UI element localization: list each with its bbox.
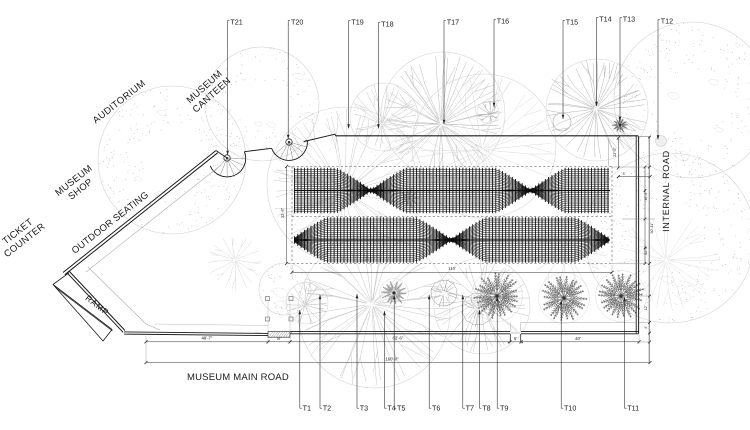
svg-text:48'-7": 48'-7" xyxy=(202,336,213,341)
svg-text:8': 8' xyxy=(277,336,280,341)
svg-text:52'-0": 52'-0" xyxy=(644,245,648,255)
svg-text:160'-0": 160'-0" xyxy=(385,356,399,361)
svg-text:T17: T17 xyxy=(447,17,459,26)
svg-text:T19: T19 xyxy=(351,17,363,26)
svg-text:6': 6' xyxy=(514,336,517,341)
svg-text:T13: T13 xyxy=(623,14,635,23)
svg-text:T20: T20 xyxy=(291,17,303,26)
svg-text:T21: T21 xyxy=(230,17,242,26)
svg-text:16'-5": 16'-5" xyxy=(644,191,648,201)
svg-text:T16: T16 xyxy=(497,16,509,25)
svg-text:40': 40' xyxy=(575,336,581,341)
svg-text:4': 4' xyxy=(644,326,648,329)
svg-text:T14: T14 xyxy=(599,14,611,23)
svg-text:5': 5' xyxy=(623,172,626,176)
svg-text:INTERNAL ROAD: INTERNAL ROAD xyxy=(661,150,671,232)
svg-text:T2: T2 xyxy=(323,404,331,413)
svg-text:T18: T18 xyxy=(381,19,393,28)
svg-text:T15: T15 xyxy=(566,17,578,26)
svg-text:T9: T9 xyxy=(500,404,508,413)
svg-text:MUSEUM MAIN ROAD: MUSEUM MAIN ROAD xyxy=(187,372,289,383)
svg-text:T10: T10 xyxy=(564,404,576,413)
svg-text:110': 110' xyxy=(448,266,456,271)
svg-text:T11: T11 xyxy=(627,404,639,413)
svg-text:32'-6": 32'-6" xyxy=(280,207,285,218)
svg-text:22'-6": 22'-6" xyxy=(613,147,617,157)
svg-text:T5: T5 xyxy=(397,404,405,413)
svg-text:T3: T3 xyxy=(360,404,368,413)
svg-text:T12: T12 xyxy=(661,16,673,25)
svg-text:30'-11": 30'-11" xyxy=(650,222,654,234)
svg-text:T1: T1 xyxy=(303,404,311,413)
svg-text:T7: T7 xyxy=(466,404,474,413)
svg-text:T8: T8 xyxy=(482,404,490,413)
svg-text:T6: T6 xyxy=(432,404,440,413)
svg-text:12': 12' xyxy=(644,305,648,310)
